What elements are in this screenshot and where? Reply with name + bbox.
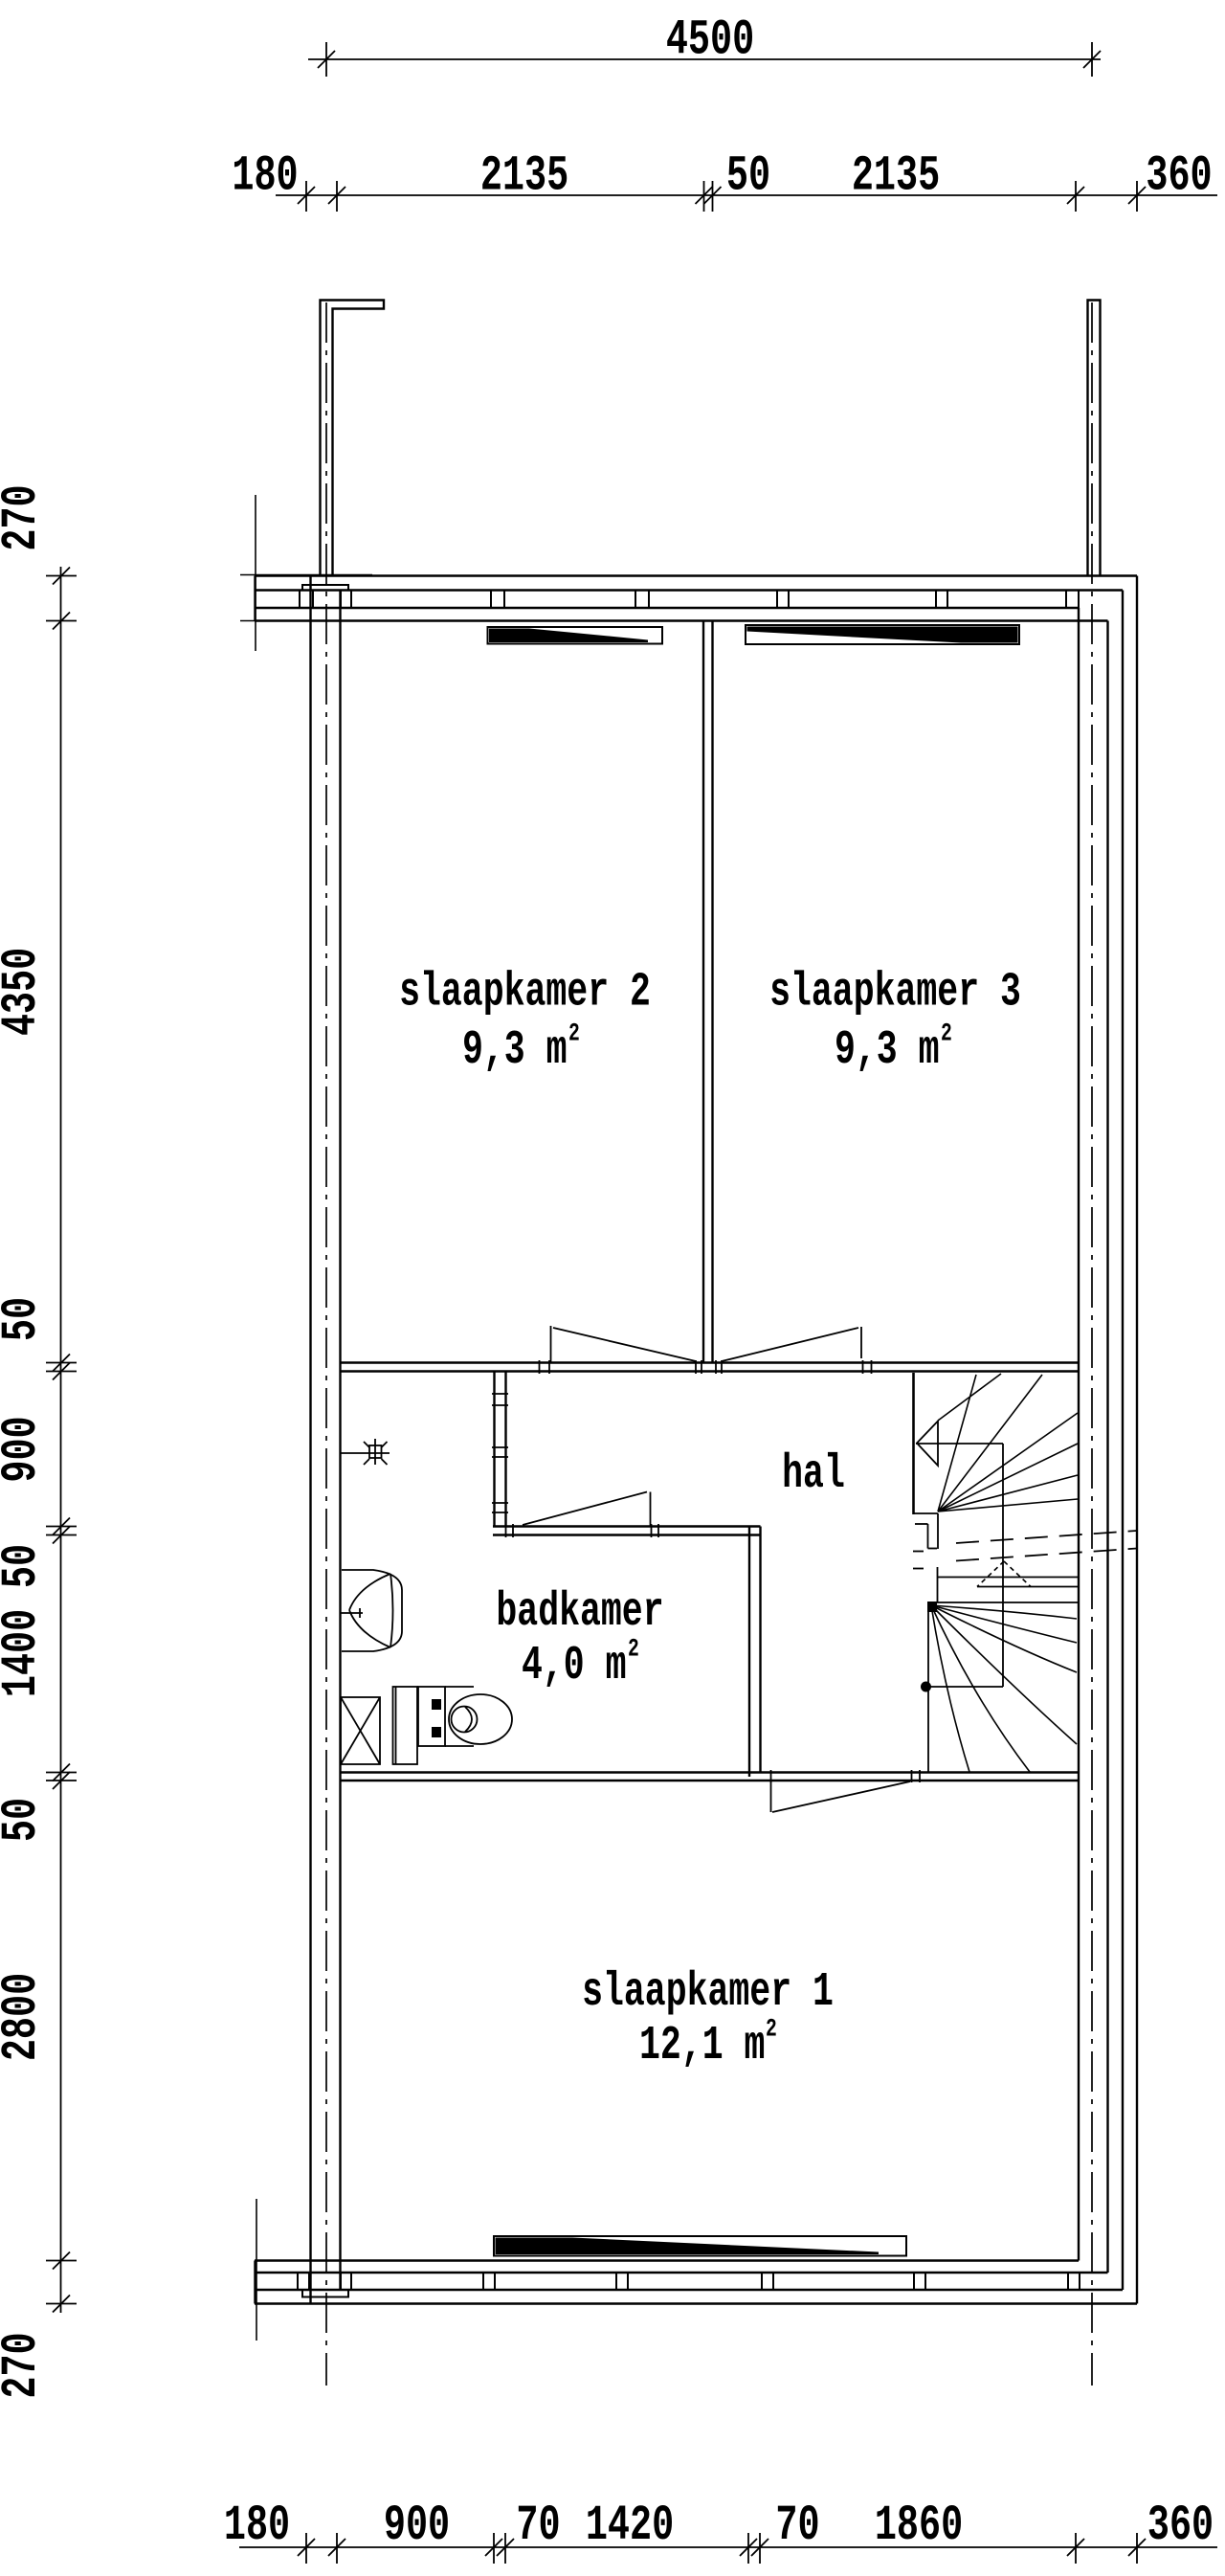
svg-text:360: 360 xyxy=(1146,147,1212,204)
svg-text:360: 360 xyxy=(1147,2498,1214,2554)
svg-text:2: 2 xyxy=(941,1019,952,1049)
svg-text:70: 70 xyxy=(516,2498,560,2554)
svg-text:50: 50 xyxy=(726,147,770,204)
svg-text:12,1 m: 12,1 m xyxy=(639,2020,765,2073)
svg-text:1400: 1400 xyxy=(0,1609,50,1697)
svg-text:1420: 1420 xyxy=(586,2498,674,2554)
svg-text:2800: 2800 xyxy=(0,1973,50,2061)
svg-text:slaapkamer 3: slaapkamer 3 xyxy=(769,967,1021,1020)
svg-text:9,3 m: 9,3 m xyxy=(835,1024,940,1078)
svg-text:slaapkamer 1: slaapkamer 1 xyxy=(582,1966,834,2020)
svg-text:2: 2 xyxy=(628,1635,639,1665)
svg-text:9,3 m: 9,3 m xyxy=(462,1024,568,1078)
svg-text:2: 2 xyxy=(568,1019,580,1049)
svg-text:50: 50 xyxy=(0,1798,50,1842)
svg-text:2135: 2135 xyxy=(480,147,568,204)
svg-text:4500: 4500 xyxy=(666,11,754,68)
svg-text:900: 900 xyxy=(0,1416,50,1482)
svg-text:4,0 m: 4,0 m xyxy=(522,1640,627,1693)
svg-text:70: 70 xyxy=(775,2498,819,2554)
svg-text:hal: hal xyxy=(782,1448,845,1502)
svg-text:2: 2 xyxy=(766,2015,777,2045)
svg-text:2135: 2135 xyxy=(852,147,940,204)
svg-text:1860: 1860 xyxy=(875,2498,963,2554)
svg-text:270: 270 xyxy=(0,2332,50,2398)
svg-text:50: 50 xyxy=(0,1297,50,1341)
svg-text:4350: 4350 xyxy=(0,948,50,1036)
svg-text:180: 180 xyxy=(232,147,298,204)
svg-text:270: 270 xyxy=(0,484,50,550)
svg-text:slaapkamer 2: slaapkamer 2 xyxy=(399,967,651,1020)
svg-text:900: 900 xyxy=(384,2498,450,2554)
svg-text:50: 50 xyxy=(0,1544,50,1588)
svg-text:badkamer: badkamer xyxy=(496,1586,663,1640)
svg-text:180: 180 xyxy=(224,2498,290,2554)
